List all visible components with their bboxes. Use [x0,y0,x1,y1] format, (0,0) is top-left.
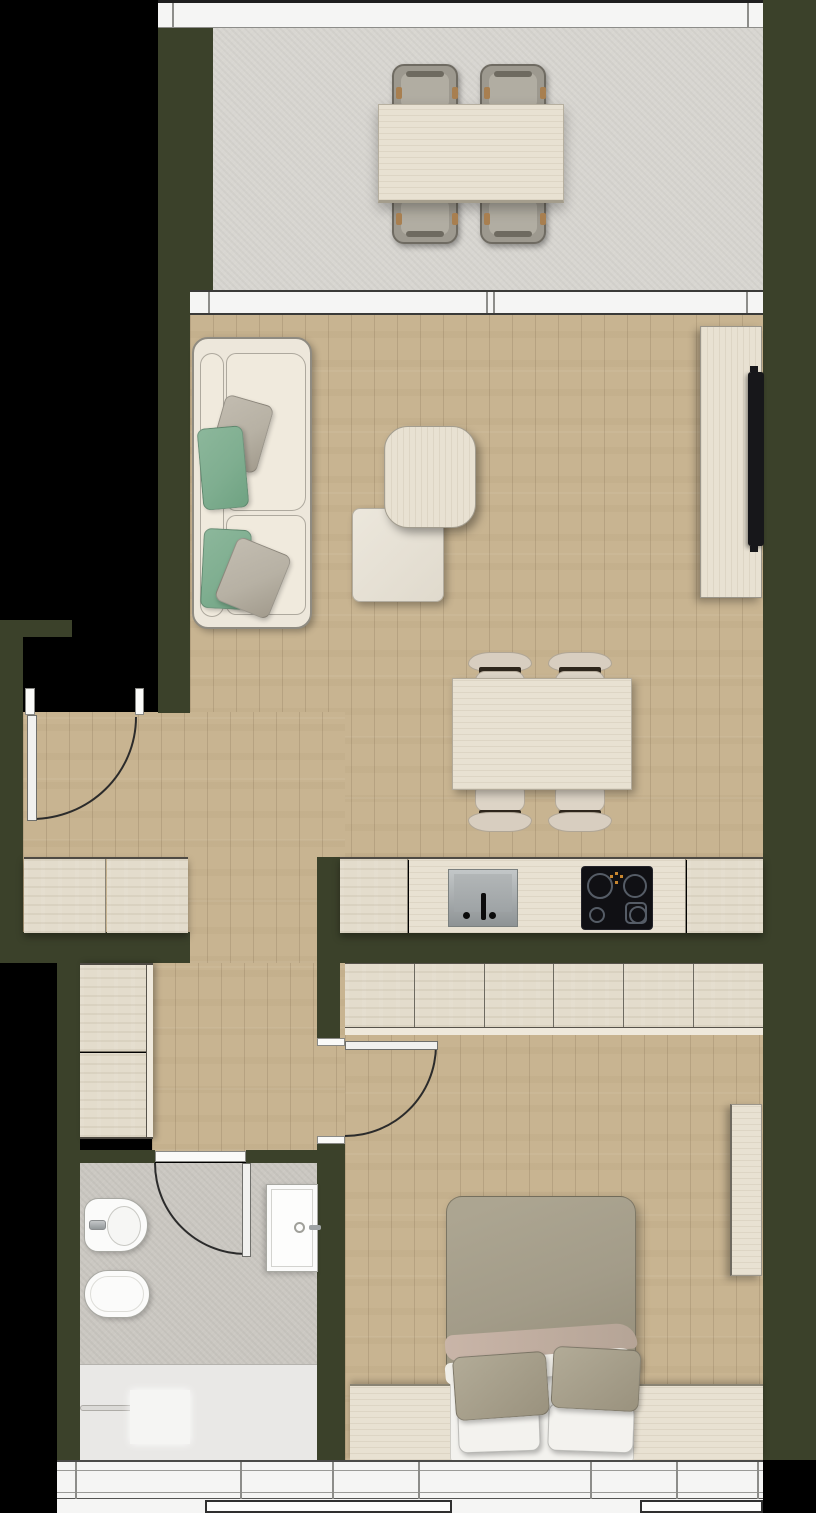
entry-sideboard [24,857,188,933]
burner [589,907,605,923]
chair-armrest [396,87,402,99]
kitchen-cabinet-door [340,859,408,933]
toilet [84,1270,150,1318]
wall-jog [0,932,190,963]
entry-door-jamb [135,688,144,715]
wall-bath-bedroom [317,1136,345,1460]
wall-kitchen-bedroom [317,933,763,963]
bidet [84,1198,148,1252]
chair-backrest [548,812,612,832]
bedroom-wardrobe [345,963,763,1035]
window-frame-line [57,1498,763,1499]
window-opening-mark [205,1500,452,1513]
kitchen-cabinet-door [687,859,763,933]
wall-bath-top-right [246,1150,318,1163]
glazing-mullion [172,3,174,27]
green-pillow [197,425,250,511]
coffee-table [384,426,476,528]
wall-desk [730,1104,762,1276]
glazing-mullion [746,292,748,313]
bidet-bowl [107,1206,141,1246]
faucet [481,893,486,920]
bathroom-door-threshold [155,1151,246,1162]
wall-right [763,0,816,1460]
bidet-faucet [89,1220,106,1230]
floor-plan [0,0,816,1513]
living-balcony-glazing [190,290,763,315]
balcony-top-glazing [158,0,763,28]
glazing-mullion [486,292,488,313]
tv-mount [750,546,758,552]
window-mullion [240,1462,242,1499]
burner [625,902,647,924]
bed-duvet [446,1196,636,1374]
chair-backrest [468,812,532,832]
entry-door-jamb [25,688,35,715]
entry-door-leaf [27,715,37,821]
chair-headrest [406,71,444,77]
shower-tray-mark [130,1390,190,1444]
burner [587,873,613,899]
induction-cooktop [582,867,652,929]
wall-left-lower [57,950,80,1460]
olive-pillow [550,1346,641,1413]
washbasin [266,1184,318,1272]
tv-mount [750,366,758,372]
basin-drain [294,1222,305,1233]
wardrobe-door [624,964,694,1027]
wardrobe-front-edge [146,965,153,1137]
glazing-mullion [493,292,495,313]
chair-headrest [494,231,532,237]
chair-armrest [396,213,402,225]
chair-armrest [484,87,490,99]
shower-area [80,1364,318,1460]
chair-armrest [484,213,490,225]
wardrobe-front-edge [345,1027,763,1035]
window-opening-mark [640,1500,763,1513]
window-mullion [332,1462,334,1499]
chair-headrest [494,71,532,77]
window-mullion [757,1462,759,1499]
window-frame-line [57,1492,763,1493]
sideboard-door [24,859,106,933]
window-frame-line [57,1470,763,1471]
glazing-mullion [747,3,749,27]
wardrobe-door [694,964,763,1027]
sideboard-door [107,859,188,933]
wardrobe-doors [345,964,763,1027]
wall-bath-top-left [57,1150,155,1163]
toilet-rim [90,1276,144,1312]
wardrobe-door [345,964,415,1027]
wall-living-left [158,305,190,713]
bottom-window-band [57,1460,763,1513]
kitchen-counter [340,857,763,933]
wall-balcony-left [158,28,213,305]
bedroom-door-jamb [317,1038,345,1046]
chair-headrest [406,231,444,237]
balcony-dining-table [378,104,564,203]
bedroom-door-jamb [317,1136,345,1144]
wardrobe-door [80,1053,146,1137]
wardrobe-door [80,965,146,1052]
wardrobe-door [485,964,555,1027]
window-mullion [418,1462,420,1499]
wall-left-upper [0,620,23,932]
wardrobe-door [554,964,624,1027]
basin-faucet [309,1225,321,1230]
shower-handle [80,1405,134,1411]
olive-pillow [452,1351,550,1421]
basin-inner [271,1189,313,1267]
glazing-mullion [208,292,210,313]
sofa [192,337,312,629]
bathroom-door-leaf [242,1163,251,1257]
hall-wardrobe [80,963,153,1139]
kitchen-sink [448,869,518,927]
faucet-knob [463,912,470,919]
window-mullion [75,1462,77,1499]
tv [748,372,764,546]
wardrobe-door [415,964,485,1027]
burner [623,874,647,898]
cooktop-controls [615,872,618,875]
dining-table [452,678,632,790]
bedroom-door-leaf [345,1041,438,1050]
window-mullion [590,1462,592,1499]
window-mullion [676,1462,678,1499]
